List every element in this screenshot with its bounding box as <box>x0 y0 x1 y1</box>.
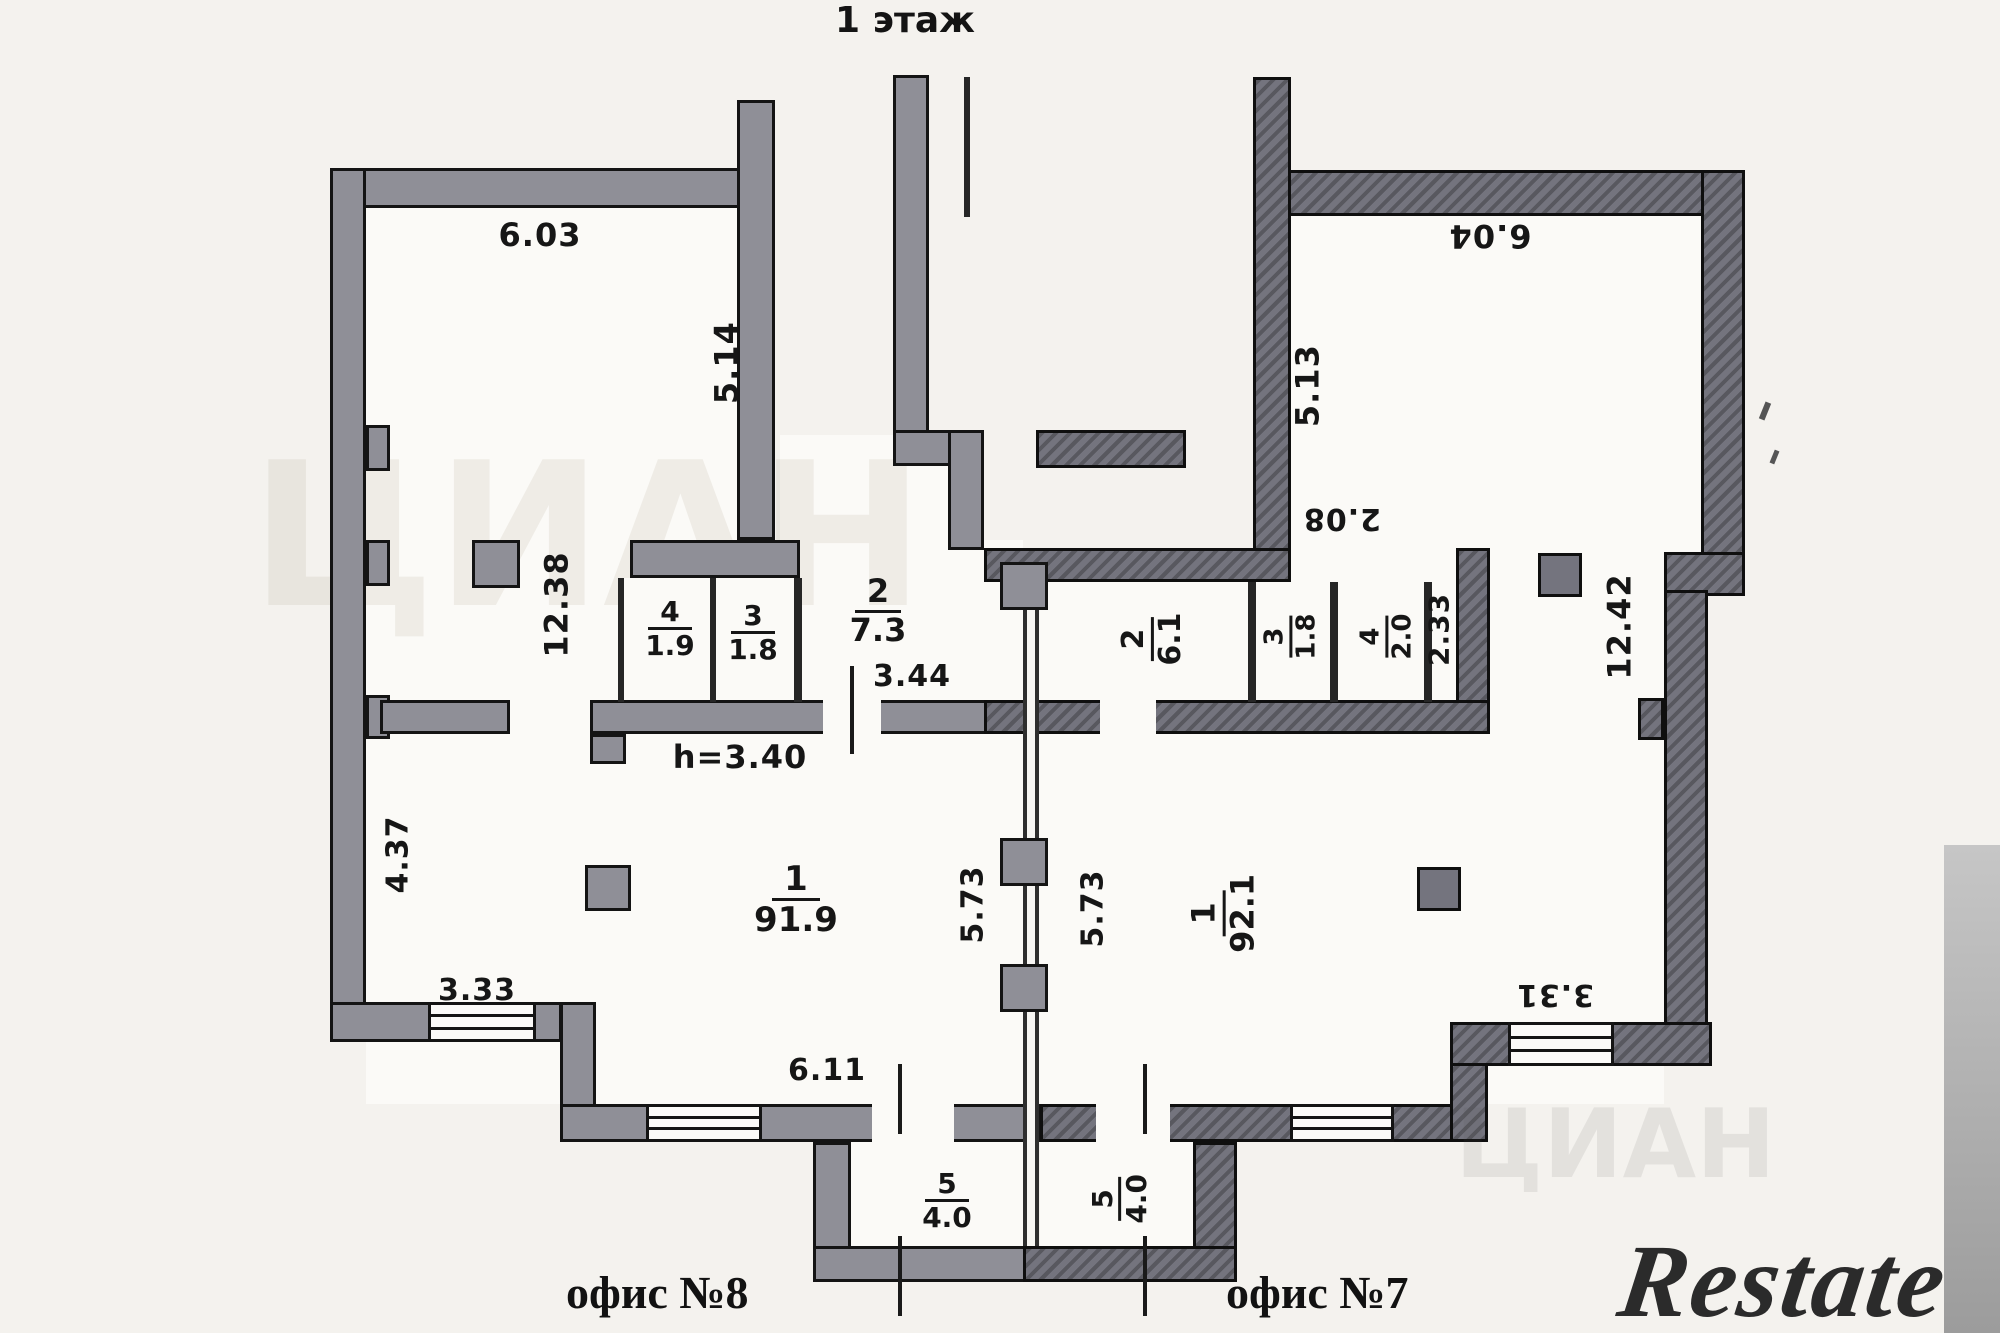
office7-room2-top-wall <box>1036 430 1186 468</box>
office7-bottom-window <box>1290 1104 1394 1142</box>
room-number: 3 <box>731 600 774 634</box>
office8-strip-bottom-wall-left <box>380 700 510 734</box>
dim-office8-total-width: 12.38 <box>539 554 574 658</box>
scan-mark-1 <box>1759 402 1771 421</box>
office8-name: офис №8 <box>566 1266 748 1319</box>
tick-bottom-office8-lower <box>898 1236 902 1316</box>
office8-room4-left-partition <box>618 578 624 702</box>
room-label-office7-r4: 4 2.0 <box>1356 604 1417 670</box>
dim-office8-bottom-width: 6.11 <box>775 1054 879 1087</box>
dim-office8-left-height: 4.37 <box>382 803 415 907</box>
room-number: 3 <box>1260 616 1292 658</box>
room-area: 7.3 <box>838 613 918 649</box>
room-label-office7-r5: 5 4.0 <box>1087 1165 1153 1233</box>
room-area: 1.8 <box>719 634 787 665</box>
partition-pillar-lower <box>1000 964 1048 1012</box>
office7-right-wall-stub <box>1638 698 1664 740</box>
room-label-office8-r3: 3 1.8 <box>719 600 787 666</box>
room-area: 1.9 <box>636 630 704 661</box>
room-area: 4.0 <box>1122 1165 1153 1233</box>
watermark-restate: Restate <box>1612 1222 1955 1333</box>
office7-right-wall-upper <box>1701 170 1745 590</box>
room-label-office8-r5: 5 4.0 <box>914 1168 980 1234</box>
dim-office7-mid-left-height: 2.08 <box>1295 502 1389 535</box>
office7-pillar-lower <box>1417 867 1461 911</box>
office8-top-wall <box>330 168 775 208</box>
office7-right-wall-lower <box>1664 590 1708 1026</box>
office8-pillar-lower <box>585 865 631 911</box>
dim-office7-partition-height: 5.73 <box>1077 857 1110 961</box>
room-label-office7-r2: 2 6.1 <box>1117 603 1187 675</box>
room-number: 4 <box>648 596 691 630</box>
office8-center-top-wall <box>893 75 929 435</box>
office7-vestibule-bottom-wall <box>1023 1246 1237 1282</box>
office7-strip-door-opening <box>1100 700 1156 734</box>
office7-right-window <box>1508 1022 1614 1066</box>
room-number: 2 <box>855 574 901 613</box>
partition-pillar-middle <box>1000 838 1048 886</box>
office7-name: офис №7 <box>1226 1266 1408 1319</box>
office7-vestibule-door-opening <box>1096 1104 1170 1142</box>
office8-room3-room2-partition <box>794 578 802 702</box>
room-area: 6.1 <box>1154 603 1188 675</box>
room-number: 5 <box>925 1168 968 1202</box>
office8-strip-door-opening <box>512 700 588 734</box>
office8-center-jog-wall <box>948 430 984 550</box>
office8-strip-bottom-notch <box>590 734 626 764</box>
dim-office8-upper-right-height: 5.14 <box>709 313 744 413</box>
dim-office8-top-width: 6.03 <box>495 218 585 253</box>
dim-office8-bottom-left-width: 3.33 <box>430 974 524 1007</box>
dim-office7-top-width: 6.04 <box>1443 218 1537 253</box>
floor-title: 1 этаж <box>800 0 1010 41</box>
office8-strip-bottom-wall-right <box>590 700 1002 734</box>
office7-strip-bottom-wall <box>984 700 1490 734</box>
dim-office8-corridor-width: 3.44 <box>864 660 960 693</box>
room-label-office7-r1: 1 92.1 <box>1187 869 1262 957</box>
dim-office8-ceiling-height: h=3.40 <box>660 740 820 775</box>
photo-gray-band <box>1944 845 2000 1333</box>
office8-left-wall-stub-1 <box>366 425 390 471</box>
partition-pillar-top <box>1000 562 1048 610</box>
tick-bottom-office7-upper <box>1143 1064 1147 1134</box>
office8-left-wall-stub-2 <box>366 540 390 586</box>
room-area: 4.0 <box>914 1202 980 1233</box>
room-label-office8-r2: 2 7.3 <box>838 574 918 649</box>
room-area: 91.9 <box>748 901 844 939</box>
room-label-office8-r4: 4 1.9 <box>636 596 704 662</box>
office8-pillar-upper <box>472 540 520 588</box>
room-area: 92.1 <box>1226 869 1262 957</box>
office8-bottom-wall <box>560 1104 1040 1142</box>
office8-left-window <box>428 1002 536 1042</box>
office8-bottom-window <box>646 1104 762 1142</box>
dim-office8-partition-height: 5.73 <box>957 853 990 957</box>
scan-mark-2 <box>1770 450 1780 465</box>
dim-office7-bottom-right-width: 3.31 <box>1508 978 1602 1011</box>
dim-office7-total-width: 12.42 <box>1602 576 1637 680</box>
tick-bottom-office8-upper <box>898 1064 902 1134</box>
central-partition <box>1023 582 1039 1246</box>
dim-office7-strip-height: 2.33 <box>1425 577 1456 681</box>
office7-top-wall <box>1253 170 1745 216</box>
office8-rooms-strip-top-wall <box>630 540 800 578</box>
room-number: 5 <box>1087 1177 1121 1220</box>
room-label-office8-r1: 1 91.9 <box>748 860 844 939</box>
office7-boundary-thin-line <box>964 77 970 217</box>
room-number: 2 <box>1117 617 1154 662</box>
room-area: 1.8 <box>1293 604 1322 670</box>
dim-office7-upper-left-height: 5.13 <box>1290 334 1325 438</box>
room-number: 1 <box>1187 890 1226 936</box>
room-number: 4 <box>1356 616 1388 658</box>
office7-pillar-upper <box>1538 553 1582 597</box>
office8-room4-room3-partition <box>710 578 716 702</box>
room-label-office7-r3: 3 1.8 <box>1260 604 1321 670</box>
office8-left-wall <box>330 168 366 1042</box>
watermark-cian-small: ЦИАН <box>1455 1090 1776 1200</box>
office8-vestibule-bottom-wall <box>813 1246 1043 1282</box>
office7-room2-room3-partition <box>1248 582 1256 702</box>
office8-vestibule-door-opening <box>872 1104 954 1142</box>
tick-bottom-office7-lower <box>1143 1236 1147 1316</box>
tick-corridor-office8 <box>850 666 854 754</box>
room-area: 2.0 <box>1389 604 1418 670</box>
office7-room3-room4-partition <box>1330 582 1338 702</box>
room-number: 1 <box>772 860 820 901</box>
office7-upper-room-left-wall <box>1253 77 1291 555</box>
floor-plan: ЦИАН <box>0 0 2000 1333</box>
